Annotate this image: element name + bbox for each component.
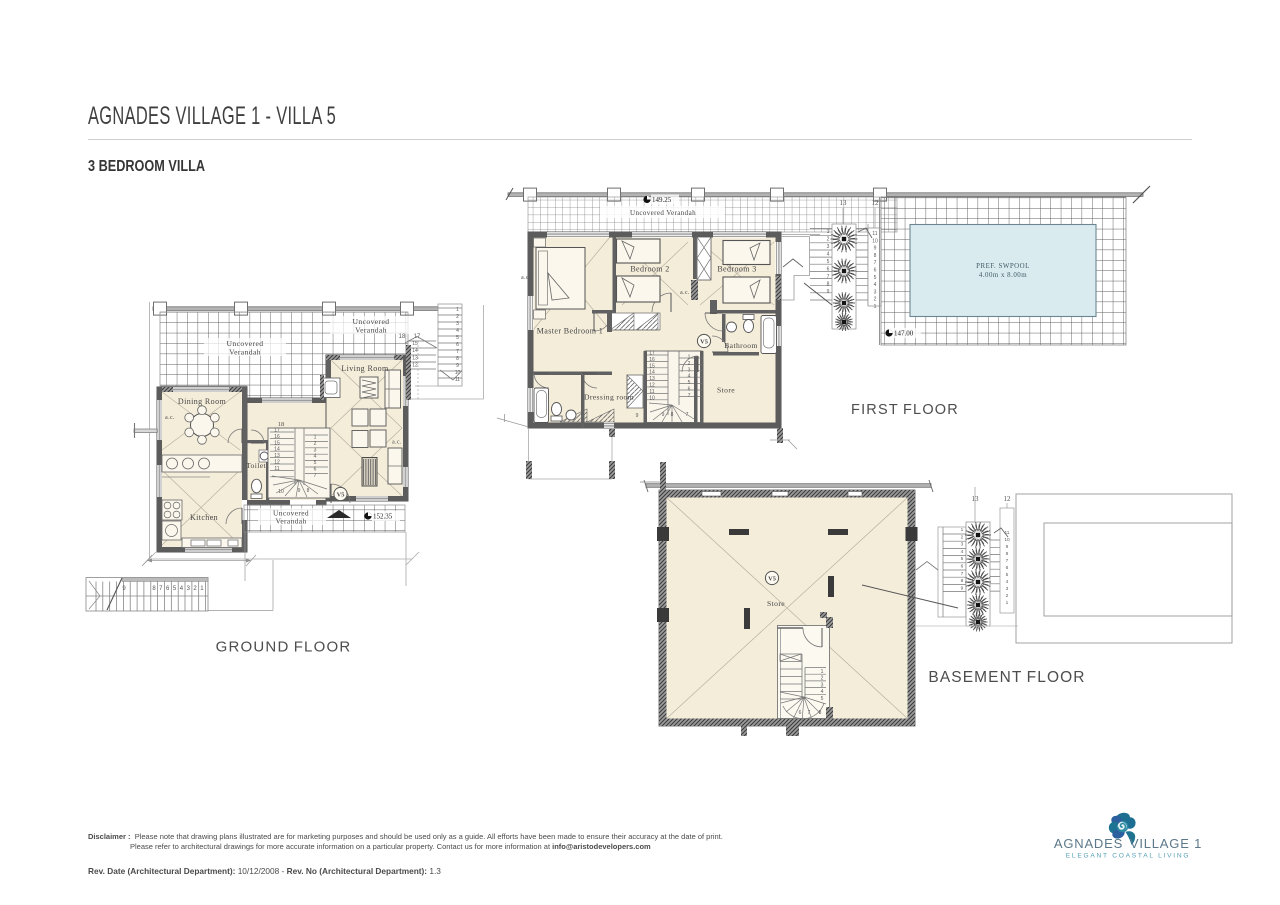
svg-text:10: 10	[649, 395, 655, 401]
svg-text:a.c.: a.c.	[392, 440, 402, 446]
svg-text:7: 7	[827, 274, 830, 280]
svg-text:9: 9	[662, 412, 665, 418]
svg-text:5: 5	[456, 335, 459, 341]
svg-text:5: 5	[314, 460, 317, 466]
svg-text:4: 4	[961, 549, 964, 555]
svg-text:6: 6	[688, 387, 691, 393]
svg-text:1: 1	[1006, 600, 1009, 606]
svg-text:9: 9	[961, 585, 964, 591]
svg-text:4: 4	[874, 282, 877, 288]
svg-text:V5: V5	[700, 338, 708, 345]
svg-text:5: 5	[961, 556, 964, 562]
svg-text:Living Room: Living Room	[341, 364, 389, 373]
svg-text:GROUND FLOOR: GROUND FLOOR	[216, 639, 352, 656]
svg-text:2: 2	[314, 441, 317, 447]
svg-text:11: 11	[455, 377, 460, 383]
svg-text:6: 6	[874, 268, 877, 274]
svg-text:4: 4	[821, 689, 824, 695]
svg-text:12: 12	[872, 199, 880, 207]
svg-text:18: 18	[278, 421, 285, 428]
svg-text:1: 1	[821, 669, 824, 675]
svg-text:Verandah: Verandah	[355, 326, 387, 335]
svg-text:6: 6	[314, 467, 317, 473]
svg-text:2: 2	[1006, 593, 1009, 599]
svg-text:3: 3	[456, 321, 459, 327]
svg-text:13: 13	[412, 355, 418, 361]
svg-text:Toilet: Toilet	[246, 461, 266, 470]
svg-text:9: 9	[636, 413, 639, 419]
svg-text:10: 10	[1004, 537, 1010, 543]
svg-text:9: 9	[1006, 544, 1009, 550]
svg-text:Dressing room: Dressing room	[584, 393, 634, 402]
svg-text:6: 6	[456, 342, 459, 348]
svg-text:8: 8	[819, 710, 822, 716]
svg-text:1: 1	[827, 229, 830, 235]
svg-text:6: 6	[799, 710, 802, 716]
svg-text:149.25: 149.25	[652, 196, 672, 204]
svg-text:147.00: 147.00	[894, 330, 914, 338]
svg-text:3: 3	[1006, 586, 1009, 592]
svg-text:2: 2	[821, 676, 824, 682]
svg-text:ELEGANT COASTAL LIVING: ELEGANT COASTAL LIVING	[1066, 853, 1191, 860]
svg-text:16: 16	[274, 434, 280, 440]
svg-text:10: 10	[278, 489, 284, 495]
svg-text:7: 7	[1006, 558, 1009, 564]
svg-text:7: 7	[808, 710, 811, 716]
svg-text:7: 7	[688, 393, 691, 399]
svg-text:13: 13	[840, 199, 848, 207]
svg-text:9: 9	[874, 246, 877, 252]
svg-text:15: 15	[649, 363, 655, 369]
svg-text:8: 8	[671, 412, 674, 418]
svg-text:14: 14	[649, 370, 655, 376]
svg-text:4: 4	[1006, 579, 1009, 585]
svg-text:12: 12	[274, 460, 280, 466]
svg-text:6: 6	[1006, 565, 1009, 571]
svg-text:3: 3	[688, 367, 691, 373]
svg-text:Store: Store	[717, 386, 735, 395]
svg-text:11: 11	[872, 231, 877, 237]
svg-text:Dining Room: Dining Room	[178, 397, 227, 406]
svg-text:Verandah: Verandah	[275, 517, 306, 526]
svg-text:V5: V5	[337, 491, 345, 498]
svg-text:5: 5	[874, 275, 877, 281]
svg-text:2: 2	[456, 314, 459, 320]
svg-text:Store: Store	[767, 599, 785, 608]
svg-text:4: 4	[688, 374, 691, 380]
svg-text:4: 4	[314, 454, 317, 460]
svg-text:18: 18	[399, 334, 406, 340]
svg-text:9: 9	[456, 363, 459, 369]
svg-text:13: 13	[274, 453, 280, 459]
svg-text:5: 5	[821, 696, 824, 702]
svg-text:7: 7	[314, 473, 317, 479]
svg-text:3: 3	[961, 542, 964, 548]
svg-text:1: 1	[314, 435, 317, 441]
svg-text:6: 6	[961, 564, 964, 570]
svg-text:8: 8	[456, 356, 459, 362]
svg-text:14: 14	[274, 447, 280, 453]
svg-text:13: 13	[649, 376, 655, 382]
svg-text:4: 4	[456, 328, 459, 334]
svg-text:3: 3	[314, 447, 317, 453]
svg-text:15: 15	[274, 440, 280, 446]
svg-text:1: 1	[874, 304, 877, 310]
svg-text:14: 14	[412, 348, 418, 354]
svg-text:7: 7	[686, 412, 689, 418]
svg-text:8: 8	[1006, 551, 1009, 557]
svg-text:7: 7	[874, 260, 877, 266]
svg-text:8: 8	[874, 253, 877, 259]
svg-text:a.c.: a.c.	[680, 290, 690, 296]
svg-text:12: 12	[1004, 495, 1012, 503]
svg-text:3: 3	[874, 289, 877, 295]
svg-text:Bathroom: Bathroom	[724, 341, 758, 350]
svg-text:12: 12	[412, 363, 418, 369]
svg-text:15: 15	[412, 341, 418, 347]
svg-text:8: 8	[827, 282, 830, 288]
svg-text:AGNADES VILLAGE 1: AGNADES VILLAGE 1	[1054, 836, 1202, 851]
svg-text:152.35: 152.35	[373, 513, 393, 521]
svg-text:9: 9	[827, 289, 830, 295]
svg-text:3: 3	[821, 682, 824, 688]
svg-text:2: 2	[874, 297, 877, 303]
svg-text:a.c.: a.c.	[165, 415, 175, 421]
svg-text:1: 1	[456, 307, 459, 313]
svg-text:1: 1	[961, 527, 964, 533]
svg-text:PREF. SWPOOL: PREF. SWPOOL	[976, 263, 1030, 270]
svg-text:10: 10	[872, 238, 878, 244]
svg-text:17: 17	[274, 428, 280, 434]
svg-text:2: 2	[688, 361, 691, 367]
svg-text:11: 11	[649, 389, 654, 395]
svg-text:Bedroom 2: Bedroom 2	[630, 265, 669, 274]
svg-text:5: 5	[827, 259, 830, 265]
svg-text:7: 7	[456, 349, 459, 355]
svg-text:16: 16	[649, 357, 655, 363]
svg-text:4: 4	[827, 252, 830, 258]
svg-text:7: 7	[961, 571, 964, 577]
svg-text:5: 5	[1006, 572, 1009, 578]
svg-text:11: 11	[274, 466, 279, 472]
svg-text:Uncovered Verandah: Uncovered Verandah	[630, 209, 696, 217]
svg-text:5: 5	[688, 380, 691, 386]
svg-text:Verandah: Verandah	[229, 348, 261, 357]
svg-text:Bedroom 3: Bedroom 3	[717, 265, 756, 274]
svg-text:9: 9	[298, 488, 301, 494]
svg-text:Kitchen: Kitchen	[190, 513, 218, 522]
svg-text:12: 12	[649, 383, 655, 389]
svg-text:a.c.: a.c.	[521, 275, 531, 281]
svg-text:3: 3	[827, 244, 830, 250]
svg-text:6: 6	[827, 267, 830, 273]
svg-text:4.00m x 8.00m: 4.00m x 8.00m	[979, 272, 1027, 279]
svg-text:BASEMENT FLOOR: BASEMENT FLOOR	[928, 669, 1085, 686]
svg-text:Master Bedroom 1: Master Bedroom 1	[537, 327, 603, 336]
svg-text:17: 17	[649, 351, 655, 357]
svg-text:FIRST FLOOR: FIRST FLOOR	[851, 402, 959, 418]
svg-text:2: 2	[961, 534, 964, 540]
svg-text:8: 8	[307, 488, 310, 494]
svg-text:8: 8	[961, 578, 964, 584]
svg-text:2: 2	[827, 237, 830, 243]
svg-text:V5: V5	[768, 575, 776, 582]
